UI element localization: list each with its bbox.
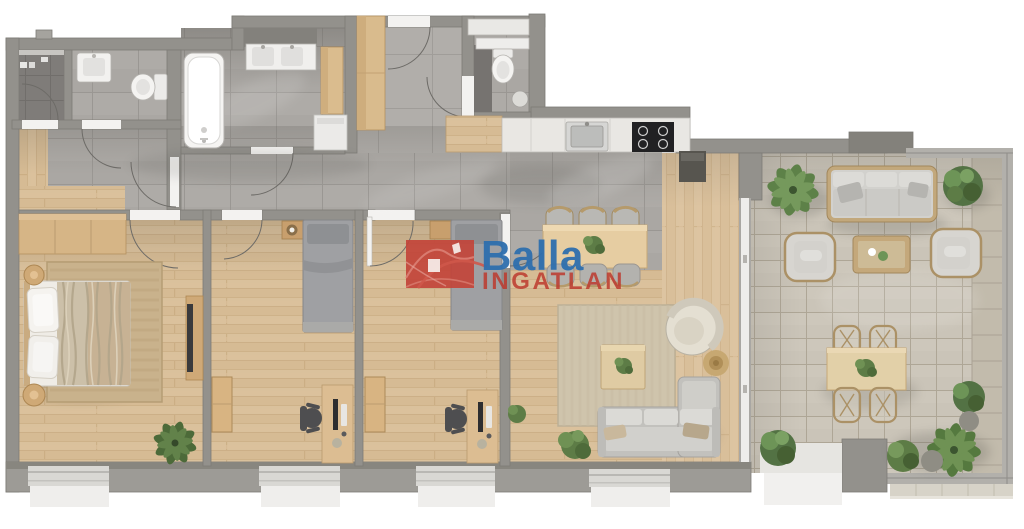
- svg-text:INGATLAN: INGATLAN: [482, 268, 625, 295]
